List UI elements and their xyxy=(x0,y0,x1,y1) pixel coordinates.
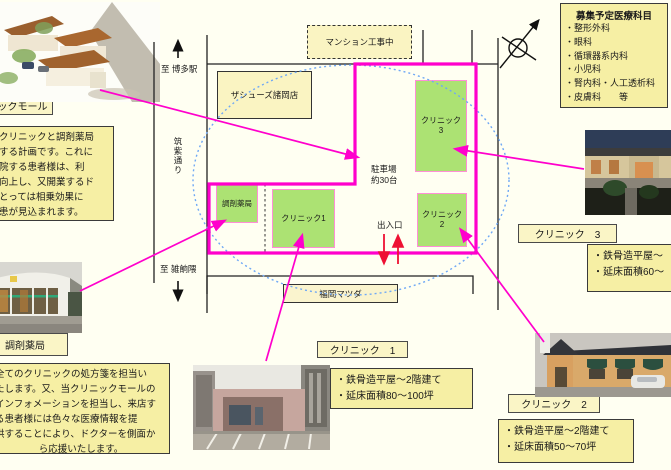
map-clinic1-building: クリニック1 xyxy=(272,189,335,248)
clinic1-photo xyxy=(193,365,330,450)
construction-site-label: マンション工事中 xyxy=(325,36,393,48)
intro-text-box: クリニックと調剤薬局 する計画です。これに 院する患者様は、利 向上し、又開業す… xyxy=(0,126,114,221)
shoes-store-label: ザシューズ諸岡店 xyxy=(231,89,299,101)
map-pharmacy-label: 調剤薬局 xyxy=(222,199,252,209)
construction-site-box: マンション工事中 xyxy=(307,25,412,59)
pharmacy-photo xyxy=(0,262,82,333)
shoes-store-box: ザシューズ諸岡店 xyxy=(217,71,312,119)
entrance-arrows-icon xyxy=(384,234,398,264)
clinic1-spec-box: ・鉄骨造平屋～2階建て ・延床面積80～100坪 xyxy=(330,368,473,409)
intro-line: クリニックと調剤薬局 xyxy=(0,130,111,145)
recruitment-item: ・整形外科 xyxy=(561,22,667,36)
recruitment-box: 募集予定医療科目 ・整形外科 ・眼科 ・循環器系内科 ・小児科 ・腎内科・人工透… xyxy=(560,3,668,108)
pharmacy-label: 調剤薬局 xyxy=(5,337,45,352)
parking-line2: 約30台 xyxy=(371,175,397,186)
clinic3-spec-line: ・延床面積60～ xyxy=(593,265,671,281)
clinic3-spec-box: ・鉄骨造平屋～ ・延床面積60～ xyxy=(587,244,671,292)
clinic2-photo xyxy=(535,333,671,397)
pharmacy-line: インフォメーションを担当し、来店す xyxy=(0,397,167,412)
recruitment-item: ・皮膚科 等 xyxy=(561,91,667,105)
clinic-mall-illustration xyxy=(0,2,160,102)
intro-line: とっては相乗効果に xyxy=(0,190,111,205)
parking-line1: 駐車場 xyxy=(371,164,397,175)
clinic1-label: クリニック 1 xyxy=(330,342,396,357)
entrance-label: 出入口 xyxy=(377,219,403,231)
map-clinic2-label: クリニック xyxy=(422,210,462,220)
map-clinic3-label: クリニック xyxy=(421,116,461,126)
pharmacy-text-box: 全てのクリニックの処方箋を担当い たします。又、当クリニックモールの インフォメ… xyxy=(0,363,170,454)
recruitment-title: 募集予定医療科目 xyxy=(561,4,667,22)
intro-line: 向上し、又開業するド xyxy=(0,175,111,190)
north-compass-icon xyxy=(500,21,538,68)
pharmacy-line: たします。又、当クリニックモールの xyxy=(0,382,167,397)
pharmacy-line: 供することにより、ドクターを側面か xyxy=(0,427,167,442)
clinic3-label: クリニック 3 xyxy=(535,226,601,241)
clinic3-spec-line: ・鉄骨造平屋～ xyxy=(593,249,671,265)
clinic1-spec-line: ・延床面積80～100坪 xyxy=(336,389,467,405)
parking-label: 駐車場 約30台 xyxy=(371,164,397,186)
recruitment-item: ・腎内科・人工透析科 xyxy=(561,77,667,91)
pharmacy-line: る患者様には色々な医療情報を提 xyxy=(0,412,167,427)
map-clinic3-building: クリニック 3 xyxy=(415,80,467,172)
intro-line: 患が見込まれます。 xyxy=(0,205,111,220)
clinic2-label: クリニック 2 xyxy=(521,396,587,411)
clinic2-spec-line: ・延床面積50～70坪 xyxy=(504,440,628,456)
clinic2-spec-line: ・鉄骨造平屋～2階建て xyxy=(504,424,628,440)
pharmacy-line: ら応援いたします。 xyxy=(0,442,167,457)
intro-line: する計画です。これに xyxy=(0,145,111,160)
map-clinic1-label: クリニック1 xyxy=(281,214,325,224)
mazda-box: 福岡マツダ xyxy=(283,284,398,303)
map-pharmacy-building: 調剤薬局 xyxy=(216,184,258,223)
to-hakata-label: 至 博多駅 xyxy=(161,63,197,75)
map-clinic2-building: クリニック 2 xyxy=(417,193,467,247)
map-clinic2-number: 2 xyxy=(440,220,444,230)
clinic3-photo xyxy=(585,130,671,215)
clinic2-spec-box: ・鉄骨造平屋～2階建て ・延床面積50～70坪 xyxy=(498,419,634,463)
recruitment-item: ・眼科 xyxy=(561,36,667,50)
pharmacy-line: 全てのクリニックの処方箋を担当い xyxy=(0,367,167,382)
clinic1-spec-line: ・鉄骨造平屋～2階建て xyxy=(336,373,467,389)
to-zasshonokuma-label: 至 雑餉隈 xyxy=(160,263,196,275)
clinic3-label-box: クリニック 3 xyxy=(518,224,617,243)
pharmacy-label-box: 調剤薬局 xyxy=(0,333,68,356)
chikushi-street-label: 筑紫通り xyxy=(172,137,184,175)
recruitment-item: ・小児科 xyxy=(561,63,667,77)
recruitment-item: ・循環器系内科 xyxy=(561,50,667,64)
mazda-label: 福岡マツダ xyxy=(319,288,362,300)
clinic1-label-box: クリニック 1 xyxy=(317,341,408,358)
site-plan-page: マンション工事中 ザシューズ諸岡店 福岡マツダ 調剤薬局 クリニック1 クリニッ… xyxy=(0,0,671,470)
intro-line: 院する患者様は、利 xyxy=(0,160,111,175)
map-clinic3-number: 3 xyxy=(439,126,443,136)
